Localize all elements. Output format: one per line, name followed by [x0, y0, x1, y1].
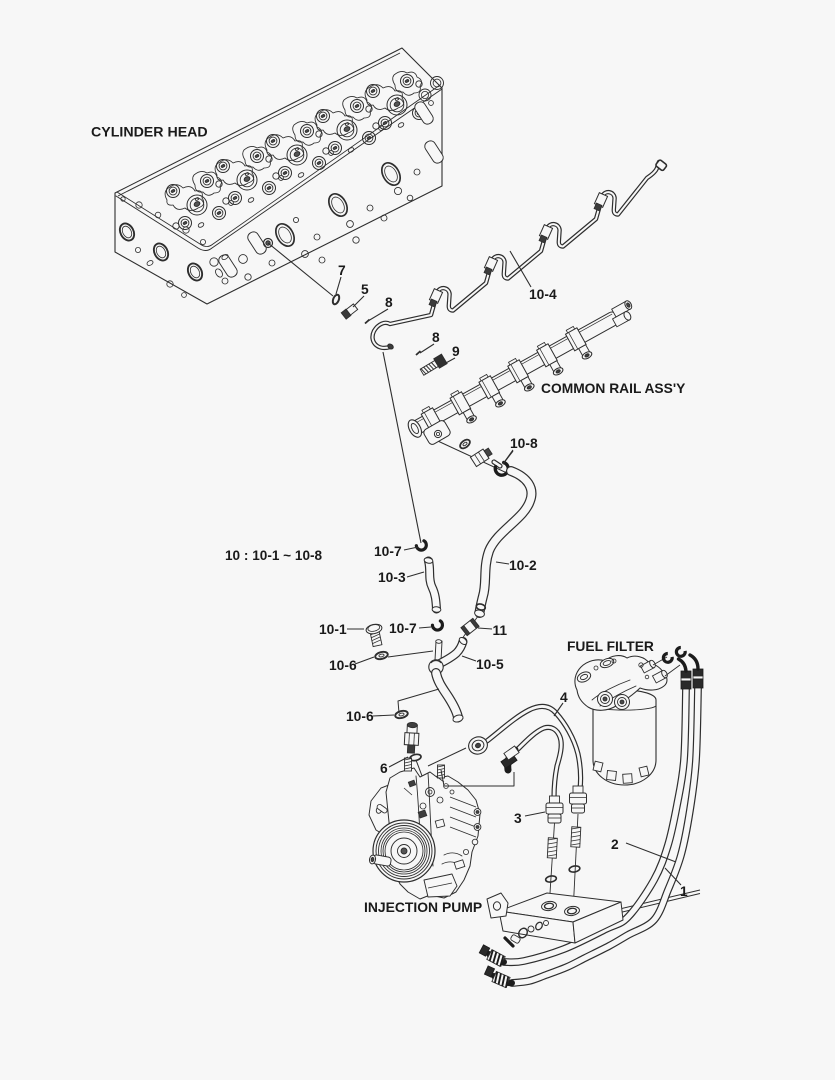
svg-text:3: 3 — [514, 811, 522, 826]
svg-text:CYLINDER HEAD: CYLINDER HEAD — [91, 125, 208, 141]
svg-text:FUEL FILTER: FUEL FILTER — [567, 639, 654, 654]
svg-text:10-3: 10-3 — [378, 570, 406, 585]
svg-text:8: 8 — [385, 295, 393, 310]
svg-text:INJECTION PUMP: INJECTION PUMP — [364, 899, 482, 915]
svg-text:10-8: 10-8 — [510, 436, 538, 451]
svg-text:10-5: 10-5 — [476, 657, 504, 672]
svg-text:10 : 10-1 ~ 10-8: 10 : 10-1 ~ 10-8 — [225, 548, 323, 563]
svg-text:11: 11 — [493, 623, 508, 638]
svg-text:4: 4 — [560, 690, 568, 705]
svg-text:10-7: 10-7 — [374, 544, 402, 559]
svg-text:9: 9 — [452, 344, 460, 359]
svg-text:10-1: 10-1 — [319, 622, 347, 637]
svg-text:10-6: 10-6 — [329, 658, 357, 673]
svg-text:2: 2 — [611, 837, 619, 852]
svg-text:5: 5 — [361, 282, 369, 297]
svg-text:8: 8 — [432, 330, 440, 345]
svg-text:7: 7 — [338, 263, 346, 278]
svg-text:10-2: 10-2 — [509, 558, 537, 573]
svg-text:10-4: 10-4 — [529, 287, 557, 302]
svg-text:10-7: 10-7 — [389, 621, 417, 636]
svg-text:6: 6 — [380, 761, 388, 776]
svg-text:1: 1 — [680, 884, 688, 899]
svg-text:COMMON RAIL ASS'Y: COMMON RAIL ASS'Y — [541, 381, 685, 396]
svg-text:10-6: 10-6 — [346, 709, 374, 724]
